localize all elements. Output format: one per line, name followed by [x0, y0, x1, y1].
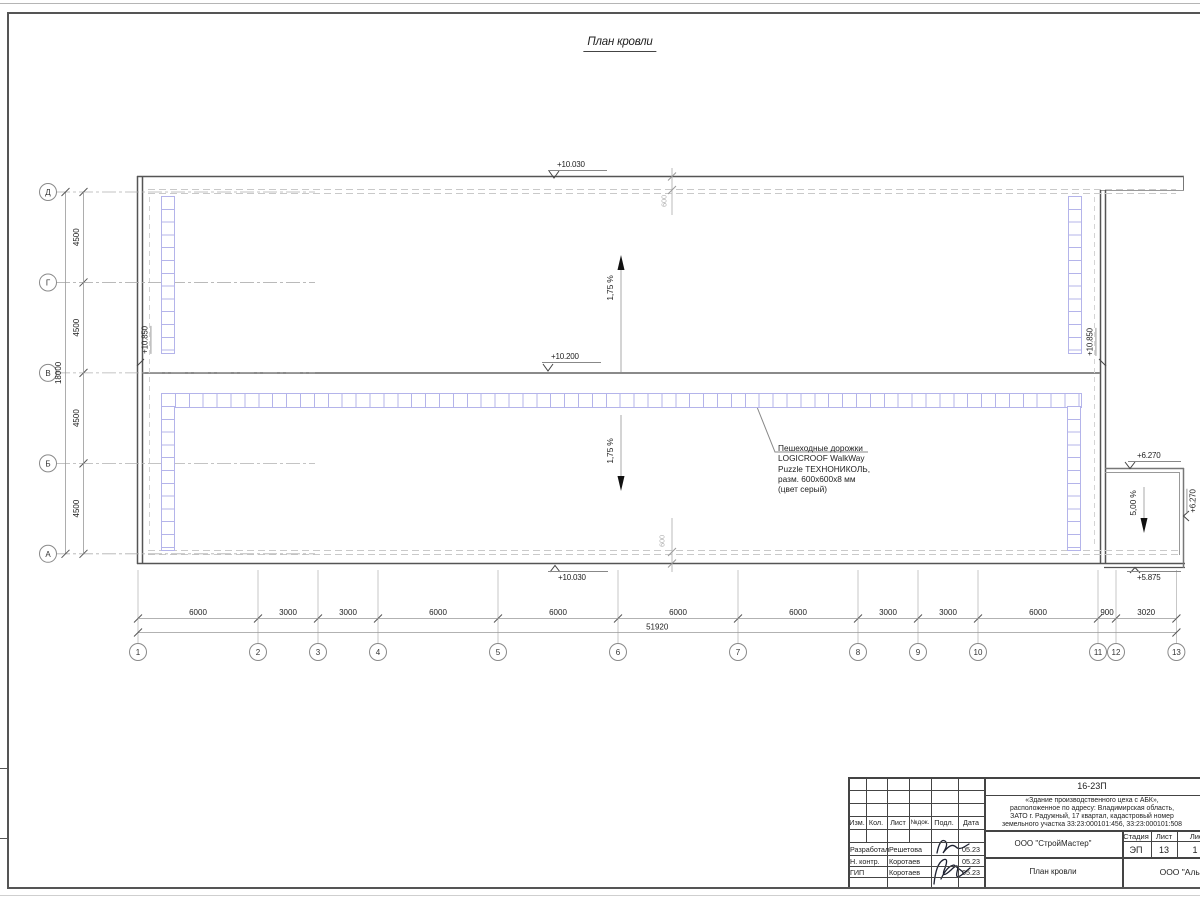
stamp-col-list: Лист [890, 818, 906, 827]
parapet-offset-dim: 600 [659, 535, 668, 547]
dim-value: 4500 [72, 409, 81, 427]
axis-label: 9 [916, 648, 921, 657]
dim-value: 6000 [669, 608, 687, 617]
stamp-line [1122, 841, 1200, 842]
stamp-name-2: Коротаев [889, 857, 920, 866]
axis-label: 2 [256, 648, 261, 657]
stamp-stage-label: Стадия [1123, 832, 1149, 841]
dim-value: 6000 [1029, 608, 1047, 617]
stamp-line [984, 857, 1200, 859]
axis-label: 5 [496, 648, 501, 657]
stamp-listov-label: Листов [1190, 832, 1200, 841]
dim-total-value: 18000 [54, 361, 63, 384]
dim-value: 4500 [72, 228, 81, 246]
axis-label: 12 [1112, 648, 1121, 657]
axis-label: Г [46, 278, 51, 287]
stamp-designer-org: ООО "СтройМастер" [1014, 839, 1091, 848]
dim-value: 4500 [72, 499, 81, 517]
stamp-col-ndok: №док. [911, 819, 930, 826]
stamp-address-line: «Здание производственного цеха с АБК», [1025, 797, 1158, 804]
note-line: Пешеходные дорожки [778, 443, 870, 453]
dim-value: 3000 [939, 608, 957, 617]
stamp-line [848, 803, 984, 804]
drawing-title: План кровли [583, 36, 656, 52]
stamp-col-kol: Кол. [869, 818, 883, 827]
elevation-annex-right: +6.270 [1186, 489, 1197, 513]
note-line: LOGICROOF WalkWay [778, 453, 870, 463]
parapet-offset-dim: 600 [661, 195, 670, 207]
stamp-line [866, 777, 867, 842]
stamp-line [931, 777, 932, 887]
walkway-strip [1067, 406, 1081, 551]
dim-value: 900 [1100, 608, 1114, 617]
stamp-line [1177, 830, 1178, 857]
stamp-line [887, 777, 888, 887]
axis-label: 7 [736, 648, 741, 657]
stamp-line [848, 790, 984, 791]
stamp-line [848, 829, 984, 830]
elevation-annex-bottom: +5.875 [1127, 571, 1181, 582]
stamp-address-line: расположенное по адресу: Владимирская об… [1010, 805, 1174, 812]
walkway-note: Пешеходные дорожки LOGICROOF WalkWay Puz… [778, 443, 870, 494]
building-outline [137, 176, 1185, 568]
stamp-col-podp: Подл. [934, 818, 953, 827]
note-line: (цвет серый) [778, 484, 870, 494]
axis-label: 11 [1094, 648, 1103, 657]
stamp-line [848, 777, 1200, 779]
elevation-eave-bottom: +10.030 [548, 571, 608, 582]
axis-label: 3 [316, 648, 321, 657]
stamp-role-1: Разработал [850, 845, 889, 854]
stamp-line [848, 842, 984, 843]
axis-label: В [45, 369, 50, 378]
axis-label: 4 [376, 648, 381, 657]
generated-axes-and-dims: 1234567891011121360003000300060006000600… [40, 184, 1185, 661]
dim-value: 4500 [72, 318, 81, 336]
dim-value: 3000 [339, 608, 357, 617]
stamp-col-data: Дата [963, 818, 979, 827]
dim-value: 6000 [429, 608, 447, 617]
slope-label-lower: 1,75 % [606, 438, 616, 463]
elevation-parapet-right: +10.850 [1085, 328, 1096, 356]
axis-label: Д [45, 188, 51, 197]
elevation-ridge: +10.200 [542, 352, 601, 363]
note-line: разм. 600х600х8 мм [778, 474, 870, 484]
stamp-client-org: ООО "Альянс" [1160, 867, 1200, 877]
axis-label: 1 [136, 648, 141, 657]
stamp-line [848, 816, 984, 817]
stamp-list-label: Лист [1156, 832, 1172, 841]
stamp-address-line: земельного участка 33:23:000101:456, 33:… [1002, 821, 1182, 828]
stamp-line [958, 777, 959, 887]
slope-label-annex: 5,00 % [1129, 490, 1139, 515]
stamp-list-value: 13 [1159, 845, 1169, 855]
walkway-strip [161, 406, 175, 551]
stamp-date-1: 05.23 [962, 845, 980, 854]
stamp-date-3: 05.23 [962, 868, 980, 877]
roof-plan-linework: 1234567891011121360003000300060006000600… [0, 0, 1200, 900]
stamp-role-3: ГИП [850, 868, 864, 877]
axis-label: 8 [856, 648, 861, 657]
drawing-sheet: 1234567891011121360003000300060006000600… [0, 0, 1200, 900]
dim-total-value: 51920 [646, 623, 669, 632]
elevation-parapet-left: +10.850 [140, 326, 151, 354]
stamp-col-izm: Изм. [849, 818, 864, 827]
axis-label: 10 [974, 648, 983, 657]
stamp-line [848, 866, 984, 867]
stamp-address-line: ЗАТО г. Радужный, 17 квартал, кадастровы… [1010, 813, 1174, 820]
stamp-date-2: 05.23 [962, 857, 980, 866]
slope-label-upper: 1,75 % [606, 275, 616, 300]
elevation-eave-top: +10.030 [548, 160, 607, 171]
dim-value: 3000 [879, 608, 897, 617]
stamp-line [848, 855, 984, 856]
axis-label: Б [45, 459, 50, 468]
axis-label: 13 [1172, 648, 1181, 657]
stamp-doc-number: 16-23П [1077, 781, 1107, 791]
stamp-line [984, 777, 986, 887]
walkway-strip [161, 393, 1082, 408]
axis-label: 6 [616, 648, 621, 657]
walkway-strip [1068, 196, 1082, 354]
dim-value: 6000 [189, 608, 207, 617]
stamp-line [1151, 830, 1152, 857]
axis-label: А [45, 550, 51, 559]
dim-value: 6000 [549, 608, 567, 617]
stamp-name-1: Решетова [889, 845, 922, 854]
stamp-name-3: Коротаев [889, 868, 920, 877]
elevation-annex-top: +6.270 [1128, 451, 1181, 462]
stamp-line [848, 877, 984, 878]
stamp-role-2: Н. контр. [850, 857, 880, 866]
note-line: Puzzle ТЕХНОНИКОЛЬ, [778, 464, 870, 474]
dim-value: 3000 [279, 608, 297, 617]
stamp-sheet-name: План кровли [1029, 867, 1076, 876]
walkway-strip [161, 196, 175, 354]
dim-value: 3020 [1137, 608, 1155, 617]
dim-value: 6000 [789, 608, 807, 617]
stamp-stage-value: ЭП [1130, 845, 1143, 855]
stamp-line [984, 795, 1200, 796]
stamp-line [909, 777, 910, 842]
stamp-listov-value: 1 [1192, 845, 1197, 855]
parapet-600-dim-lines [668, 168, 676, 572]
